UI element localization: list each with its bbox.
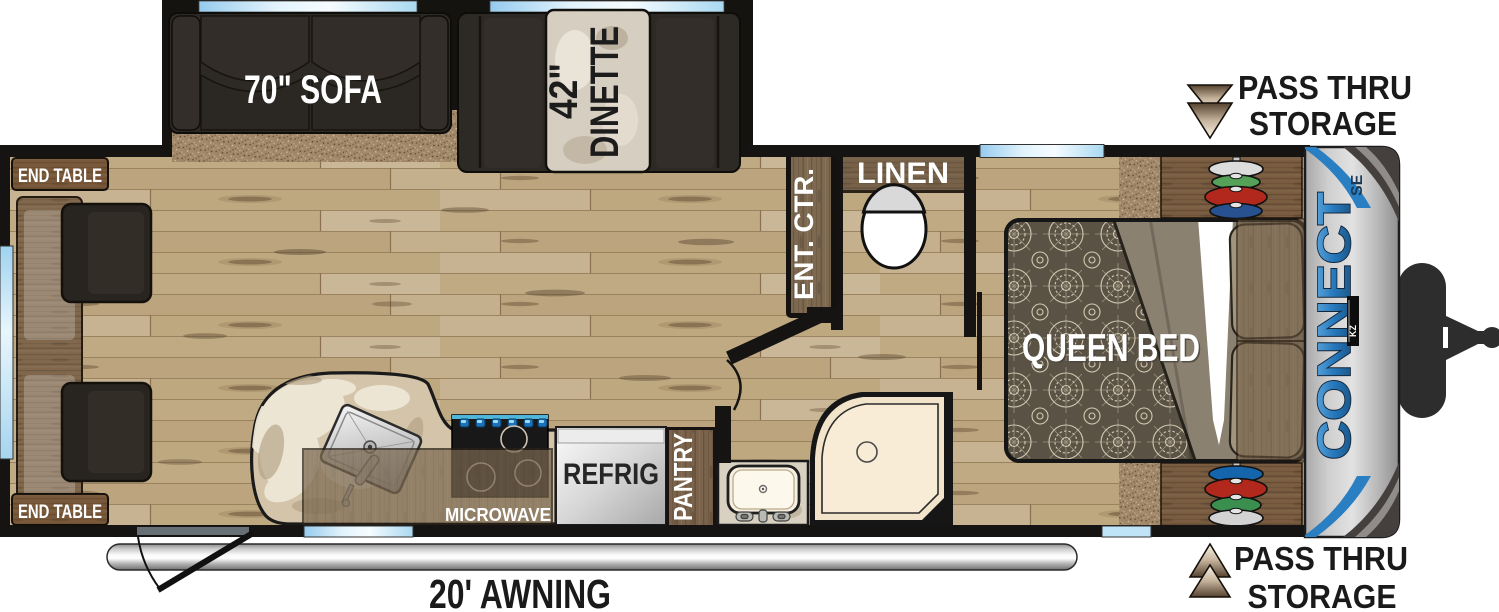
svg-text:MICROWAVE: MICROWAVE: [445, 505, 551, 525]
svg-text:END TABLE: END TABLE: [18, 166, 102, 187]
svg-text:STORAGE: STORAGE: [1248, 578, 1397, 612]
svg-text:DINETTE: DINETTE: [583, 26, 627, 158]
svg-text:QUEEN BED: QUEEN BED: [1022, 327, 1200, 370]
svg-text:42": 42": [542, 63, 586, 119]
svg-text:20' AWNING: 20' AWNING: [429, 571, 611, 612]
svg-text:PANTRY: PANTRY: [668, 433, 698, 521]
svg-text:70" SOFA: 70" SOFA: [244, 68, 382, 112]
svg-text:SE: SE: [1349, 174, 1366, 196]
svg-text:REFRIG: REFRIG: [563, 458, 659, 491]
svg-text:PASS THRU: PASS THRU: [1234, 540, 1408, 577]
svg-text:STORAGE: STORAGE: [1249, 105, 1397, 142]
svg-text:ENT. CTR.: ENT. CTR.: [789, 168, 819, 300]
svg-text:PASS THRU: PASS THRU: [1238, 69, 1412, 106]
svg-text:END TABLE: END TABLE: [18, 502, 102, 523]
svg-text:KZ: KZ: [1348, 325, 1358, 337]
